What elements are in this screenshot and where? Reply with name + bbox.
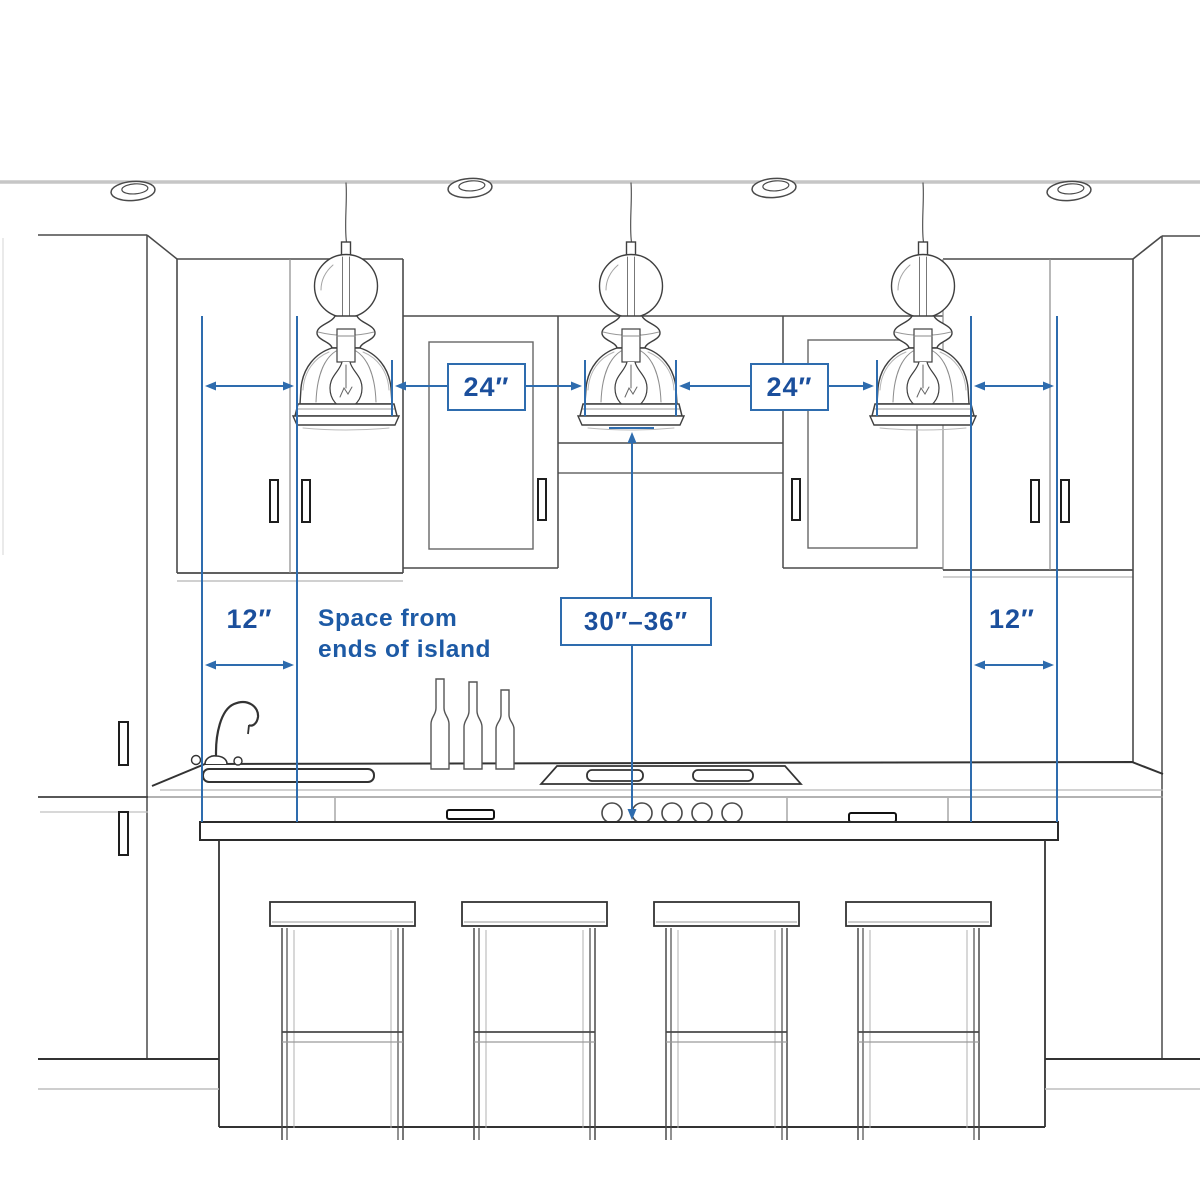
pendant-light-center — [578, 183, 684, 430]
island-base — [219, 840, 1045, 1127]
note-space-from-ends-of-island: Space from ends of island — [318, 603, 491, 665]
pendant-light-left — [293, 183, 399, 430]
range-hood — [558, 443, 783, 473]
left-wall — [3, 235, 177, 1058]
kitchen-pendant-spacing-diagram: 24″ 24″ 30″–36″ 12″ 12″ Space from ends … — [0, 0, 1200, 1200]
pendant-light-right — [870, 183, 976, 430]
sink — [203, 769, 374, 782]
bar-stool — [270, 902, 415, 1140]
island-countertop — [200, 822, 1058, 840]
dimension-label-pendant-gap-right: 24″ — [750, 363, 829, 411]
upper-cabinets-right — [943, 236, 1162, 763]
bar-stools — [270, 902, 991, 1140]
dimension-label-pendant-gap-left: 24″ — [447, 363, 526, 411]
drawer-handle — [447, 810, 494, 819]
cooktop-knobs — [602, 803, 742, 823]
bar-stool — [654, 902, 799, 1140]
island-front — [335, 798, 948, 823]
right-wall — [1162, 236, 1200, 1058]
back-counter — [148, 679, 1163, 797]
floor — [38, 1059, 1200, 1089]
dimension-label-island-end-right: 12″ — [967, 604, 1057, 635]
bar-stool — [846, 902, 991, 1140]
wine-bottles — [431, 679, 514, 769]
note-line-2: ends of island — [318, 634, 491, 665]
dimension-label-hanging-height: 30″–36″ — [560, 597, 712, 646]
note-line-1: Space from — [318, 603, 491, 634]
drawer-handle — [849, 813, 896, 822]
upper-cabinet-mid-left — [403, 316, 943, 568]
bar-stool — [462, 902, 607, 1140]
dimension-label-island-end-left: 12″ — [202, 604, 297, 635]
cooktop — [541, 766, 801, 784]
